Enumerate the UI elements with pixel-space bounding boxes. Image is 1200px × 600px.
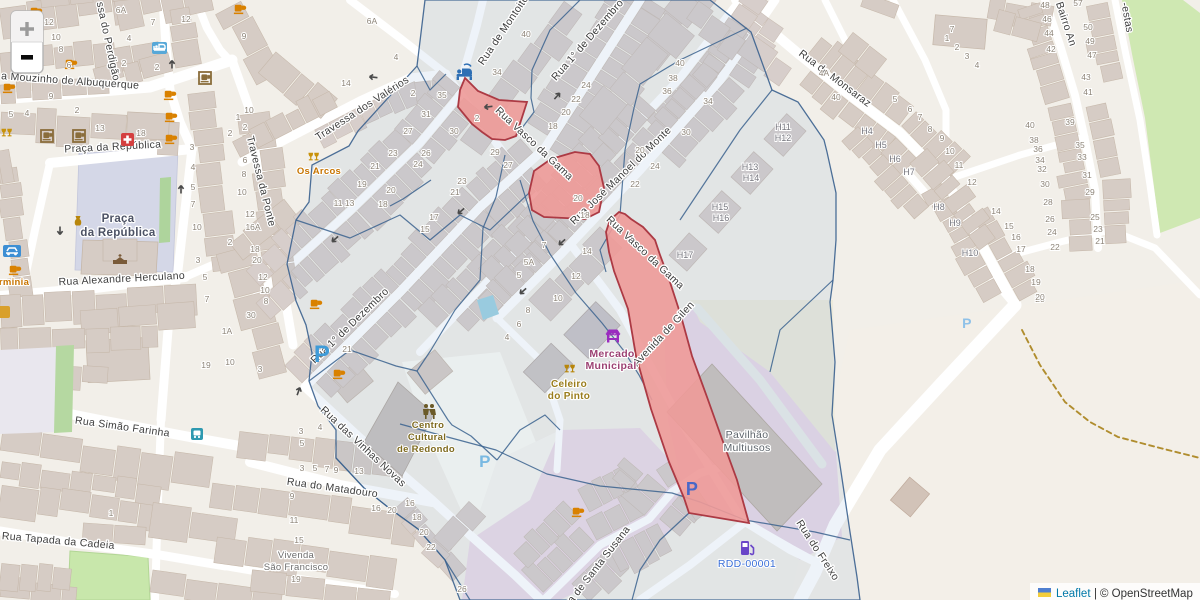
svg-text:6: 6	[908, 104, 913, 114]
svg-text:10: 10	[192, 222, 202, 232]
svg-text:2: 2	[955, 42, 960, 52]
svg-text:3: 3	[258, 364, 263, 374]
svg-text:10: 10	[945, 146, 955, 156]
svg-text:rminia: rminia	[0, 277, 30, 288]
svg-text:Celeiro: Celeiro	[551, 379, 587, 390]
svg-text:48: 48	[1040, 0, 1050, 10]
svg-text:10: 10	[553, 293, 563, 303]
svg-text:3: 3	[965, 51, 970, 61]
svg-text:H6: H6	[889, 154, 901, 164]
svg-text:Municipal: Municipal	[585, 360, 636, 372]
svg-text:10: 10	[51, 32, 61, 42]
svg-text:Os Arcos: Os Arcos	[297, 166, 341, 177]
svg-text:18: 18	[1025, 264, 1035, 274]
svg-text:20: 20	[635, 145, 645, 155]
svg-text:34: 34	[492, 67, 502, 77]
svg-text:26: 26	[1045, 214, 1055, 224]
svg-text:8: 8	[59, 44, 64, 54]
svg-text:1: 1	[109, 508, 114, 518]
svg-text:20: 20	[561, 107, 571, 117]
svg-text:21: 21	[450, 187, 460, 197]
svg-text:34: 34	[703, 96, 713, 106]
svg-text:P: P	[314, 341, 330, 368]
svg-text:12: 12	[44, 17, 54, 27]
svg-text:7: 7	[205, 294, 210, 304]
svg-text:2: 2	[243, 122, 248, 132]
svg-text:4A: 4A	[819, 68, 830, 78]
svg-text:3: 3	[190, 142, 195, 152]
svg-text:10: 10	[225, 357, 235, 367]
svg-text:10: 10	[237, 187, 247, 197]
svg-text:24: 24	[650, 161, 660, 171]
svg-text:Pavilhão: Pavilhão	[726, 429, 769, 441]
svg-text:26: 26	[421, 148, 431, 158]
svg-text:© OpenStreetMap: © OpenStreetMap	[1100, 588, 1193, 600]
svg-text:H13: H13	[742, 162, 759, 172]
svg-text:15: 15	[420, 224, 430, 234]
svg-text:|: |	[1094, 588, 1097, 600]
svg-text:H10: H10	[962, 248, 979, 258]
svg-text:35: 35	[437, 90, 447, 100]
svg-text:6A: 6A	[367, 16, 378, 26]
svg-text:6: 6	[517, 319, 522, 329]
svg-text:10: 10	[244, 105, 254, 115]
svg-text:8: 8	[526, 305, 531, 315]
svg-text:57: 57	[1073, 0, 1083, 8]
svg-text:19: 19	[1031, 277, 1041, 287]
svg-text:47: 47	[1087, 50, 1097, 60]
svg-text:30: 30	[1040, 179, 1050, 189]
svg-text:3: 3	[196, 255, 201, 265]
svg-text:2: 2	[122, 58, 127, 68]
svg-text:4: 4	[975, 60, 980, 70]
svg-text:40: 40	[521, 29, 531, 39]
svg-text:24: 24	[1047, 227, 1057, 237]
svg-text:H11: H11	[775, 122, 791, 132]
svg-text:9: 9	[290, 491, 295, 501]
svg-text:2: 2	[228, 128, 233, 138]
svg-text:38: 38	[668, 73, 678, 83]
svg-text:H15: H15	[712, 202, 729, 212]
svg-text:4: 4	[505, 332, 510, 342]
svg-text:11 13: 11 13	[334, 198, 355, 208]
svg-text:31: 31	[1082, 170, 1092, 180]
svg-text:15: 15	[294, 535, 304, 545]
svg-text:8: 8	[242, 169, 247, 179]
svg-text:de Redondo: de Redondo	[397, 444, 455, 455]
svg-text:6A: 6A	[116, 5, 127, 15]
svg-text:2: 2	[75, 105, 80, 115]
svg-text:11: 11	[955, 160, 964, 170]
svg-text:17: 17	[1016, 244, 1026, 254]
svg-text:RDD-00001: RDD-00001	[718, 558, 776, 570]
svg-text:40: 40	[1025, 120, 1035, 130]
svg-text:17: 17	[429, 212, 439, 222]
svg-text:7: 7	[191, 199, 196, 209]
svg-text:44: 44	[1044, 28, 1054, 38]
svg-text:Cultural: Cultural	[408, 432, 446, 443]
svg-text:5: 5	[313, 463, 318, 473]
svg-text:28: 28	[1043, 197, 1053, 207]
svg-text:20: 20	[386, 185, 396, 195]
svg-text:3: 3	[299, 426, 304, 436]
svg-text:43: 43	[1081, 72, 1091, 82]
svg-text:H16: H16	[713, 213, 730, 223]
svg-text:14: 14	[341, 78, 351, 88]
svg-text:18: 18	[250, 244, 260, 254]
svg-text:H5: H5	[875, 140, 887, 150]
svg-text:41: 41	[1083, 87, 1093, 97]
svg-text:22: 22	[630, 179, 640, 189]
svg-text:20: 20	[387, 505, 397, 515]
svg-text:22: 22	[1050, 242, 1060, 252]
svg-text:18: 18	[580, 210, 590, 220]
svg-text:13: 13	[354, 466, 364, 476]
svg-text:6: 6	[243, 155, 248, 165]
svg-text:14: 14	[582, 246, 592, 256]
svg-text:23: 23	[1093, 224, 1103, 234]
svg-text:46: 46	[1042, 14, 1052, 24]
svg-text:16: 16	[1011, 232, 1021, 242]
svg-text:1: 1	[945, 33, 950, 43]
svg-text:25: 25	[1090, 212, 1100, 222]
svg-text:36: 36	[1033, 144, 1043, 154]
svg-text:18: 18	[378, 199, 388, 209]
svg-text:Leaflet: Leaflet	[1056, 588, 1091, 600]
svg-text:2: 2	[155, 62, 160, 72]
svg-text:16: 16	[405, 498, 415, 508]
svg-text:24: 24	[581, 80, 591, 90]
svg-text:19: 19	[201, 360, 211, 370]
svg-text:36: 36	[662, 86, 672, 96]
svg-text:7: 7	[950, 24, 955, 34]
svg-text:6: 6	[67, 60, 72, 70]
svg-text:19: 19	[291, 574, 301, 584]
svg-text:42: 42	[1046, 44, 1056, 54]
svg-text:2: 2	[411, 88, 416, 98]
svg-text:13: 13	[95, 123, 105, 133]
svg-text:12: 12	[967, 177, 977, 187]
svg-text:18: 18	[136, 128, 146, 138]
svg-text:4: 4	[127, 33, 132, 43]
svg-text:Vivenda: Vivenda	[278, 550, 315, 561]
svg-text:9: 9	[334, 465, 339, 475]
svg-text:20: 20	[573, 193, 583, 203]
svg-text:35: 35	[1075, 140, 1085, 150]
svg-text:22: 22	[426, 542, 436, 552]
svg-text:Mercado: Mercado	[589, 348, 634, 360]
svg-text:8: 8	[264, 296, 269, 306]
svg-text:21: 21	[1095, 236, 1105, 246]
svg-text:9: 9	[242, 31, 247, 41]
svg-text:9: 9	[940, 133, 945, 143]
svg-text:33: 33	[1077, 152, 1087, 162]
svg-text:20: 20	[419, 527, 429, 537]
svg-text:2: 2	[475, 113, 480, 123]
svg-text:5: 5	[300, 438, 305, 448]
svg-text:P: P	[479, 452, 491, 471]
svg-text:40: 40	[831, 92, 841, 102]
svg-text:1: 1	[236, 112, 241, 122]
svg-text:49: 49	[1085, 36, 1095, 46]
svg-text:5: 5	[517, 270, 522, 280]
svg-text:31: 31	[421, 109, 431, 119]
svg-text:H12: H12	[775, 133, 792, 143]
svg-text:10: 10	[260, 285, 270, 295]
svg-text:Praça: Praça	[102, 213, 135, 225]
svg-text:39: 39	[1065, 117, 1075, 127]
svg-text:4: 4	[318, 422, 323, 432]
svg-text:5A: 5A	[524, 257, 535, 267]
svg-text:H4: H4	[861, 126, 873, 136]
svg-text:29: 29	[490, 147, 500, 157]
svg-text:23: 23	[457, 176, 467, 186]
svg-text:26: 26	[457, 584, 467, 594]
svg-text:12: 12	[258, 272, 268, 282]
svg-text:5: 5	[9, 109, 14, 119]
svg-text:11: 11	[290, 515, 299, 525]
svg-text:32: 32	[1037, 164, 1047, 174]
svg-text:P: P	[686, 479, 698, 499]
svg-text:H8: H8	[933, 202, 945, 212]
svg-text:18: 18	[548, 121, 558, 131]
svg-text:15: 15	[1004, 221, 1014, 231]
svg-text:São Francisco: São Francisco	[264, 562, 329, 573]
svg-text:12: 12	[245, 209, 255, 219]
svg-text:12: 12	[181, 14, 191, 24]
svg-text:27: 27	[403, 126, 413, 136]
svg-text:21: 21	[342, 344, 352, 354]
svg-text:P: P	[962, 315, 972, 331]
svg-text:4: 4	[191, 162, 196, 172]
svg-text:22: 22	[571, 94, 581, 104]
svg-text:29: 29	[1085, 187, 1095, 197]
svg-text:16A: 16A	[245, 222, 260, 232]
svg-text:Multiusos: Multiusos	[723, 442, 770, 454]
svg-text:20: 20	[1035, 292, 1045, 302]
svg-text:5: 5	[893, 94, 898, 104]
svg-text:4: 4	[394, 52, 399, 62]
svg-text:7: 7	[325, 464, 330, 474]
svg-text:50: 50	[1083, 22, 1093, 32]
svg-text:H17: H17	[677, 250, 694, 260]
svg-text:30: 30	[449, 126, 459, 136]
svg-text:da República: da República	[80, 227, 155, 239]
svg-text:24: 24	[413, 159, 423, 169]
svg-text:5: 5	[191, 182, 196, 192]
svg-text:14: 14	[991, 206, 1001, 216]
svg-text:Centro: Centro	[412, 420, 444, 431]
svg-text:5: 5	[203, 272, 208, 282]
svg-text:7: 7	[151, 17, 156, 27]
svg-text:30: 30	[681, 127, 691, 137]
svg-text:27: 27	[503, 160, 513, 170]
svg-text:9: 9	[49, 91, 54, 101]
svg-text:23: 23	[388, 148, 398, 158]
svg-text:19: 19	[357, 179, 367, 189]
svg-text:7: 7	[918, 112, 923, 122]
svg-text:30: 30	[246, 310, 256, 320]
svg-text:8: 8	[928, 124, 933, 134]
svg-text:4: 4	[25, 108, 30, 118]
svg-text:do Pinto: do Pinto	[548, 391, 590, 402]
svg-text:40: 40	[675, 58, 685, 68]
svg-text:H14: H14	[743, 173, 760, 183]
svg-text:18: 18	[412, 512, 422, 522]
svg-text:1A: 1A	[222, 326, 233, 336]
svg-text:7: 7	[542, 240, 547, 250]
svg-text:12: 12	[571, 271, 581, 281]
svg-text:H9: H9	[949, 218, 961, 228]
svg-text:20: 20	[252, 255, 262, 265]
svg-text:3: 3	[300, 463, 305, 473]
svg-text:H7: H7	[903, 167, 915, 177]
svg-text:2: 2	[228, 237, 233, 247]
svg-text:16: 16	[371, 503, 381, 513]
svg-text:21: 21	[370, 161, 380, 171]
